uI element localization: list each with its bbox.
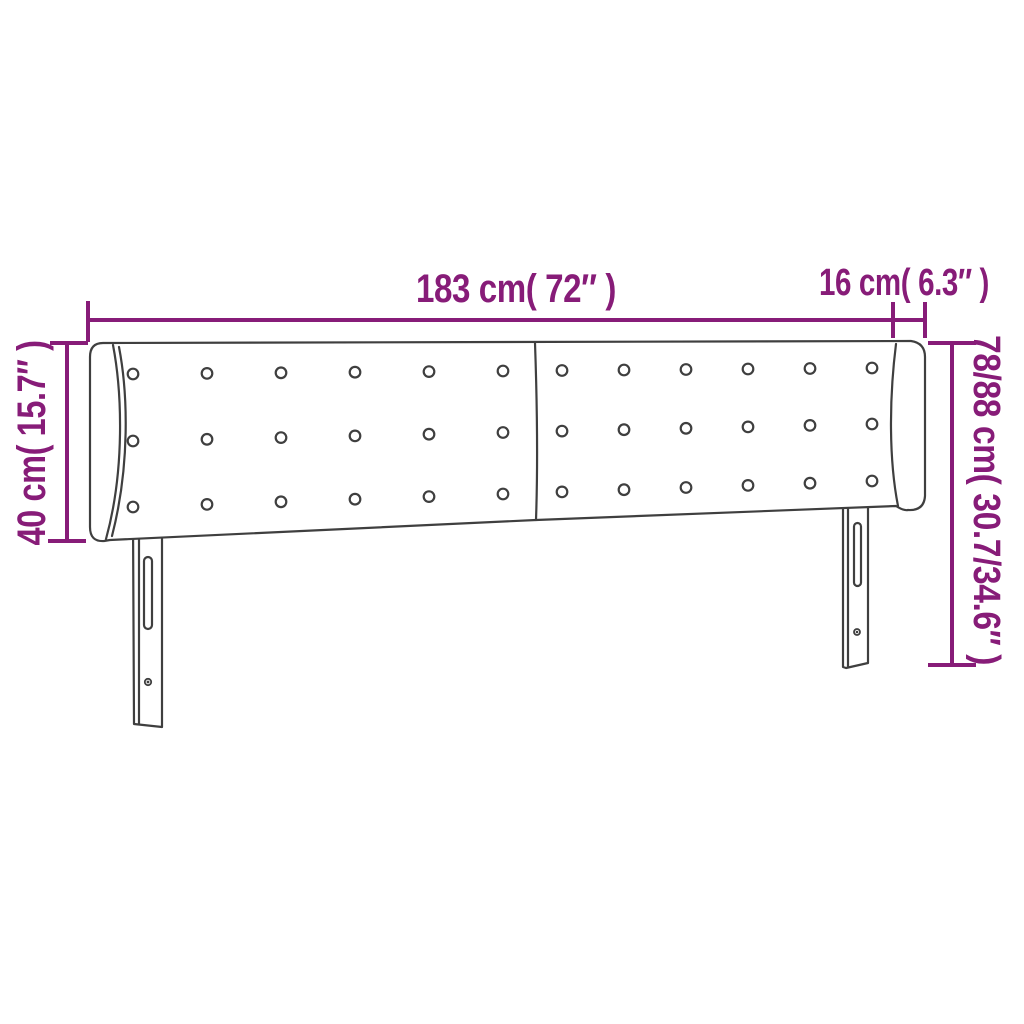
left-leg-body bbox=[133, 520, 162, 727]
product-dimension-diagram: 183 cm( 72″ ) 16 cm( 6.3″ ) 40 cm( 15.7″… bbox=[0, 0, 1024, 1024]
tufting-button bbox=[128, 369, 139, 380]
tufting-button bbox=[681, 423, 692, 434]
tufting-button bbox=[743, 480, 754, 491]
right-leg bbox=[843, 490, 868, 668]
tufting-button bbox=[202, 434, 213, 445]
tufting-button bbox=[867, 363, 878, 374]
tufting-button bbox=[743, 422, 754, 433]
tufting-button bbox=[498, 366, 509, 377]
tufting-button bbox=[619, 484, 630, 495]
tufting-button bbox=[557, 426, 568, 437]
headboard-drawing bbox=[90, 341, 925, 727]
tufting-button bbox=[619, 424, 630, 435]
left-leg bbox=[133, 520, 162, 727]
left-leg-hole-center bbox=[147, 681, 150, 684]
tufting-button bbox=[128, 502, 139, 513]
tufting-button bbox=[743, 364, 754, 375]
tufting-button bbox=[867, 476, 878, 487]
tufting-button bbox=[805, 420, 816, 431]
tufting-button bbox=[424, 366, 435, 377]
total-width-label: 183 cm( 72″ ) bbox=[416, 267, 616, 311]
total-height-label: 78/88 cm( 30.7/34.6″ ) bbox=[965, 335, 1007, 665]
tufting-button bbox=[276, 432, 287, 443]
tufting-button bbox=[867, 419, 878, 430]
tufting-button bbox=[805, 478, 816, 489]
tufting-button bbox=[350, 431, 361, 442]
tufting-button bbox=[128, 436, 139, 447]
tufting-button bbox=[350, 367, 361, 378]
tufting-button bbox=[424, 429, 435, 440]
tufting-button bbox=[498, 427, 509, 438]
tufting-button bbox=[350, 494, 361, 505]
headboard-diagram-canvas: 183 cm( 72″ ) 16 cm( 6.3″ ) 40 cm( 15.7″… bbox=[0, 0, 1024, 1024]
tufting-button bbox=[557, 365, 568, 376]
tufting-button bbox=[276, 497, 287, 508]
tufting-button bbox=[202, 368, 213, 379]
tufting-button bbox=[681, 482, 692, 493]
tufting-button bbox=[424, 491, 435, 502]
tufting-button bbox=[276, 368, 287, 379]
right-leg-body bbox=[843, 490, 868, 668]
tufting-button bbox=[619, 365, 630, 376]
right-leg-hole-center bbox=[856, 631, 859, 634]
panel-height-label: 40 cm( 15.7″ ) bbox=[10, 341, 54, 546]
tufting-button bbox=[202, 499, 213, 510]
tufting-button bbox=[681, 364, 692, 375]
tufting-button bbox=[557, 487, 568, 498]
tufting-button bbox=[498, 489, 509, 500]
tufting-button bbox=[805, 363, 816, 374]
ear-depth-label: 16 cm( 6.3″ ) bbox=[819, 262, 989, 304]
